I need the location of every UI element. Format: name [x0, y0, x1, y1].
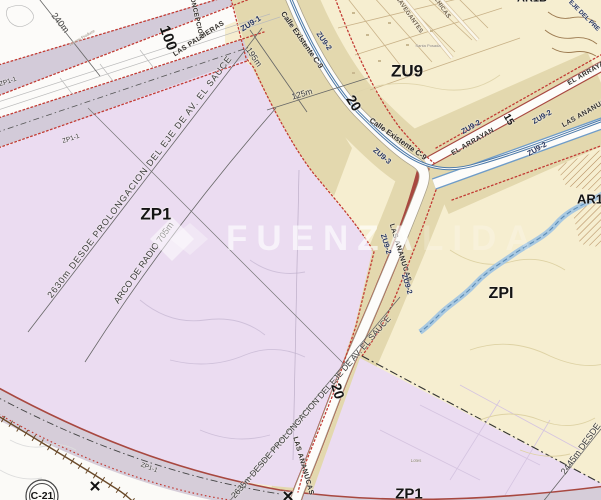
zone-label-zp1-1-c: ZP1-1	[140, 462, 159, 474]
zone-label-zp1-1-b: ZP1-1	[62, 133, 81, 145]
zone-label-zu9-2-south-b: ZU9-2	[400, 273, 413, 295]
zone-label-zu9-3: ZU9-3	[372, 146, 393, 165]
street-label-las-ananucas-east: LAS ANANUCAS	[561, 93, 601, 129]
tiny-label-johnny-produce: Johnny Produce	[68, 29, 95, 47]
road-width-20-top: 20	[344, 93, 364, 114]
street-label-el-arrayan-east: EL ARRAYAN	[567, 58, 601, 87]
zone-label-zu9-2-top: ZU9-2	[315, 30, 333, 51]
zone-label-zu9-1: ZU9-1	[239, 15, 262, 34]
zone-label-ar1: AR1	[577, 193, 601, 206]
zoning-map-image: 240m 100 LAS PALMERAS CONCEPCION Johnny …	[0, 0, 601, 500]
zone-label-zpi: ZPI	[489, 286, 514, 302]
dim-label-2635m: 2635m DESDE PROLONGACION DEL EJE DE AV. …	[230, 314, 393, 500]
zone-label-zu9-2-east-a: ZU9-2	[531, 109, 553, 126]
railroad-crossing-icon-a: ✕	[89, 480, 102, 495]
dim-label-195m: 195m	[245, 46, 264, 68]
zone-label-zu9-2-east-b: ZU9-2	[460, 119, 482, 136]
road-code-100: 100	[157, 24, 180, 53]
street-label-navegantes: NAVEGANTES	[394, 0, 424, 34]
tiny-label-lotes: Lotes	[411, 459, 422, 463]
dim-label-240m: 240m	[50, 11, 71, 34]
tiny-label-santa-posada: Santa Posada	[415, 44, 440, 48]
street-label-concepcion: CONCEPCION	[188, 0, 205, 40]
railroad-crossing-icon-b: ✕	[282, 490, 295, 500]
labels-layer: 240m 100 LAS PALMERAS CONCEPCION Johnny …	[0, 0, 601, 500]
dim-label-125m: 125m	[291, 87, 314, 101]
route-badge-c21: C-21	[31, 491, 54, 500]
zone-label-zp1-1-a: ZP1-1	[0, 76, 17, 88]
dim-label-2445m: 2445m DESDE	[559, 422, 601, 477]
street-label-eje-del-pre: EJE DEL PRE	[567, 0, 600, 33]
zone-label-zu9-2-east-c: ZU9-2	[526, 141, 548, 158]
zone-label-zu9: ZU9	[391, 63, 423, 80]
road-width-15: 15	[501, 113, 515, 128]
zone-label-zp1-bottom: ZP1	[395, 487, 423, 500]
dim-label-arco-radio-705m: ARCO DE RADIO 705m	[112, 221, 175, 306]
road-width-20-bottom: 20	[329, 382, 347, 401]
street-label-chicas: CHICAS	[433, 0, 452, 20]
zone-label-ar1b-clipped: AR1B	[517, 0, 547, 5]
street-label-el-arrayan-west: EL ARRAYAN	[450, 127, 495, 157]
street-label-las-ananucas-south: LAS ANANUCAS	[291, 436, 314, 496]
